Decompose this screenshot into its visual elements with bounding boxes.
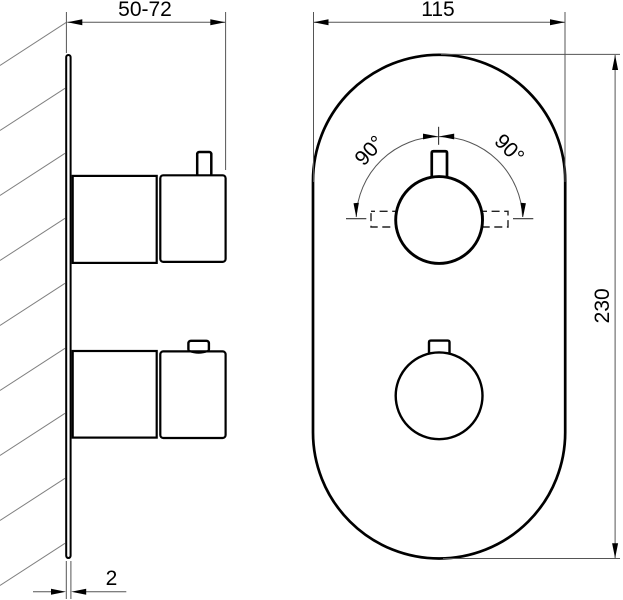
svg-text:2: 2	[106, 567, 118, 590]
svg-text:230: 230	[591, 288, 614, 323]
svg-text:115: 115	[421, 0, 454, 21]
svg-text:50-72: 50-72	[118, 0, 172, 21]
